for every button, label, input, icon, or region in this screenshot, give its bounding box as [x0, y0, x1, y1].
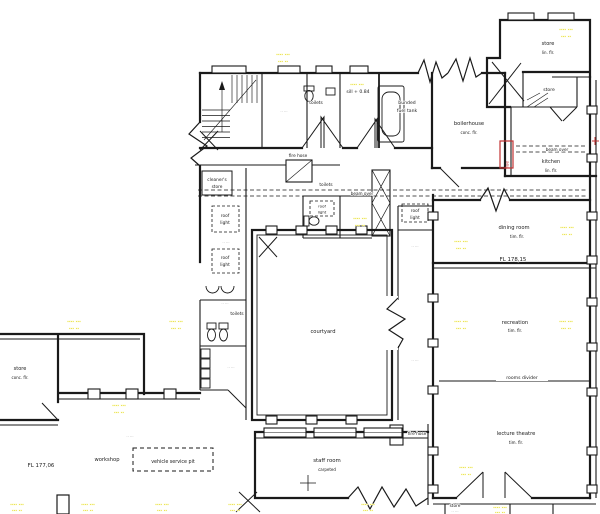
yellow-note: ∙∙∙ ∙∙	[562, 233, 573, 238]
wc-fixture	[304, 216, 309, 226]
yellow-note: ∙∙∙∙ ∙∙∙	[228, 503, 242, 508]
kitchen-label: kitchen	[542, 159, 560, 165]
floor-plan-drawing: flue sill + 0.84 toilets bunded fuel tan…	[0, 0, 600, 514]
yellow-note: ∙∙∙∙ ∙∙∙	[361, 503, 375, 508]
roof-light-2-label2: light	[220, 262, 230, 268]
fire-hose-2-label: fire hose	[408, 431, 427, 437]
roof-light-1-label2: light	[220, 220, 230, 226]
locker	[201, 379, 210, 388]
micro-note: ·· ···	[221, 301, 228, 306]
dining-floor-label: tim. flr.	[510, 234, 524, 239]
boilerhouse-floor-label: conc. flr.	[461, 130, 478, 135]
yellow-note: ∙∙∙∙ ∙∙∙	[459, 466, 473, 471]
stair-direction-arrow	[219, 81, 225, 90]
micro-note: ·· ···	[280, 109, 287, 114]
micro-note: ·· ···	[126, 434, 133, 439]
locker	[201, 349, 210, 358]
micro-notes: ·· ··· ·· ··· ·· ··· ·· ··· ·· ··· ·· ··…	[126, 109, 458, 514]
urinal-fixture	[206, 286, 219, 293]
locker	[201, 359, 210, 368]
wc-fixture	[219, 323, 228, 329]
beam-over-mid-label: beam over	[351, 191, 374, 196]
door-swings	[42, 62, 577, 512]
staff-room-label: staff room	[313, 458, 341, 464]
beam-over-kitchen-label: beam over	[546, 147, 569, 152]
yellow-note: ∙∙∙∙ ∙∙∙	[67, 320, 81, 325]
roof-light-2-label: roof	[221, 255, 230, 261]
flue-label: flue	[505, 161, 510, 169]
micro-note: ·· ···	[451, 509, 458, 514]
staircase	[202, 75, 257, 140]
store-topright-floor-label: lin. flr.	[542, 50, 554, 55]
toilets-top-label: toilets	[309, 100, 323, 106]
boilerhouse-label: boilerhouse	[454, 121, 484, 127]
yellow-note: ∙∙∙ ∙∙	[230, 509, 241, 514]
store-topright-label: store	[542, 41, 555, 47]
wc-fixture	[207, 323, 216, 329]
yellow-highlight-notes: ∙∙∙∙ ∙∙∙ ∙∙∙ ∙∙ ∙∙∙∙ ∙∙∙ ∙∙∙∙ ∙∙∙ ∙∙∙ ∙∙…	[10, 28, 574, 514]
yellow-note: ∙∙∙ ∙∙	[278, 60, 289, 65]
yellow-note: ∙∙∙ ∙∙	[363, 509, 374, 514]
recreation-floor-label: tim. flr.	[508, 328, 522, 333]
roof-light-4-label: roof	[411, 208, 420, 214]
floor-level-dining-label: FL 178,15	[500, 257, 527, 263]
yellow-note: ∙∙∙ ∙∙	[171, 327, 182, 332]
yellow-note: ∙∙∙ ∙∙	[461, 473, 472, 478]
yellow-note: ∙∙∙∙ ∙∙∙	[155, 503, 169, 508]
dashed-beam-lines	[198, 146, 588, 196]
bunded-tank-label2: fuel tank	[397, 108, 418, 114]
yellow-note: ∙∙∙∙ ∙∙∙	[276, 53, 290, 58]
yellow-note: ∙∙∙ ∙∙	[114, 411, 125, 416]
kitchen-floor-label: lin. flr.	[545, 168, 557, 173]
toilets-mid-label: toilets	[319, 182, 333, 188]
room-labels: sill + 0.84 toilets bunded fuel tank boi…	[12, 41, 569, 509]
cleaners-store-label2: store	[212, 184, 223, 190]
yellow-note: ∙∙∙∙ ∙∙∙	[112, 404, 126, 409]
yellow-note: ∙∙∙ ∙∙	[83, 509, 94, 514]
yellow-note: ∙∙∙∙ ∙∙∙	[350, 83, 364, 88]
roof-light-1-label: roof	[221, 213, 230, 219]
red-edge-mark	[592, 137, 599, 145]
basin-fixture	[326, 88, 335, 95]
cleaners-store-label: cleaner's	[207, 177, 227, 183]
courtyard-label: courtyard	[310, 329, 335, 335]
interior-walls	[0, 72, 596, 514]
micro-note: ·· ···	[411, 358, 418, 363]
survey-cross	[300, 475, 316, 491]
yellow-note: ∙∙∙∙ ∙∙∙	[353, 217, 367, 222]
toilets-left-label: toilets	[230, 311, 244, 317]
fire-hose-top-label: fire hose	[289, 153, 308, 159]
yellow-note: ∙∙∙∙ ∙∙∙	[560, 226, 574, 231]
yellow-note: ∙∙∙ ∙∙	[561, 327, 572, 332]
yellow-note: ∙∙∙ ∙∙	[355, 224, 366, 229]
yellow-note: ∙∙∙ ∙∙	[456, 247, 467, 252]
roof-light-3-label: roof	[318, 204, 326, 209]
shaft-cross	[372, 170, 390, 236]
yellow-note: ∙∙∙∙ ∙∙∙	[169, 320, 183, 325]
yellow-note: ∙∙∙∙ ∙∙∙	[559, 320, 573, 325]
workshop-label: workshop	[94, 457, 120, 463]
yellow-note: ∙∙∙ ∙∙	[456, 327, 467, 332]
yellow-note: ∙∙∙∙ ∙∙∙	[81, 503, 95, 508]
yellow-note: ∙∙∙∙ ∙∙∙	[454, 320, 468, 325]
yellow-note: ∙∙∙∙ ∙∙∙	[10, 503, 24, 508]
floor-level-workshop-label: FL 177,06	[28, 463, 55, 469]
sill-label: sill + 0.84	[346, 89, 369, 95]
locker	[201, 369, 210, 378]
bunded-tank-label: bunded	[398, 100, 415, 106]
floor-plan-page: flue sill + 0.84 toilets bunded fuel tan…	[0, 0, 600, 514]
yellow-note: ∙∙∙ ∙∙	[157, 509, 168, 514]
staff-floor-label: carpeted	[318, 467, 336, 472]
yellow-note: ∙∙∙ ∙∙	[12, 509, 23, 514]
store-left-floor-label: conc. flr.	[12, 375, 29, 380]
lecture-floor-label: tim. flr.	[509, 440, 523, 445]
yellow-note: ∙∙∙ ∙∙	[69, 327, 80, 332]
vehicle-service-pit-label: vehicle service pit	[151, 459, 195, 465]
micro-note: ·· ···	[222, 240, 229, 245]
dining-room-label: dining room	[498, 225, 529, 231]
rooms-divider-label: rooms divider	[506, 375, 538, 381]
yellow-note: ∙∙∙∙ ∙∙∙	[454, 240, 468, 245]
yellow-note: ∙∙∙∙ ∙∙∙	[559, 28, 573, 33]
micro-note: ·· ···	[227, 365, 234, 370]
store-left-label: store	[14, 366, 27, 372]
roof-light-3-label2: light	[318, 210, 327, 215]
urinal-fixture	[221, 286, 234, 293]
hatch-lines	[527, 93, 548, 107]
recreation-label: recreation	[502, 320, 528, 326]
roof-light-4-label2: light	[410, 215, 420, 221]
store-small-label: store	[543, 87, 555, 93]
lecture-theatre-label: lecture theatre	[497, 431, 536, 437]
yellow-note: ∙∙∙ ∙∙	[561, 35, 572, 40]
micro-note: ·· ···	[411, 244, 418, 249]
